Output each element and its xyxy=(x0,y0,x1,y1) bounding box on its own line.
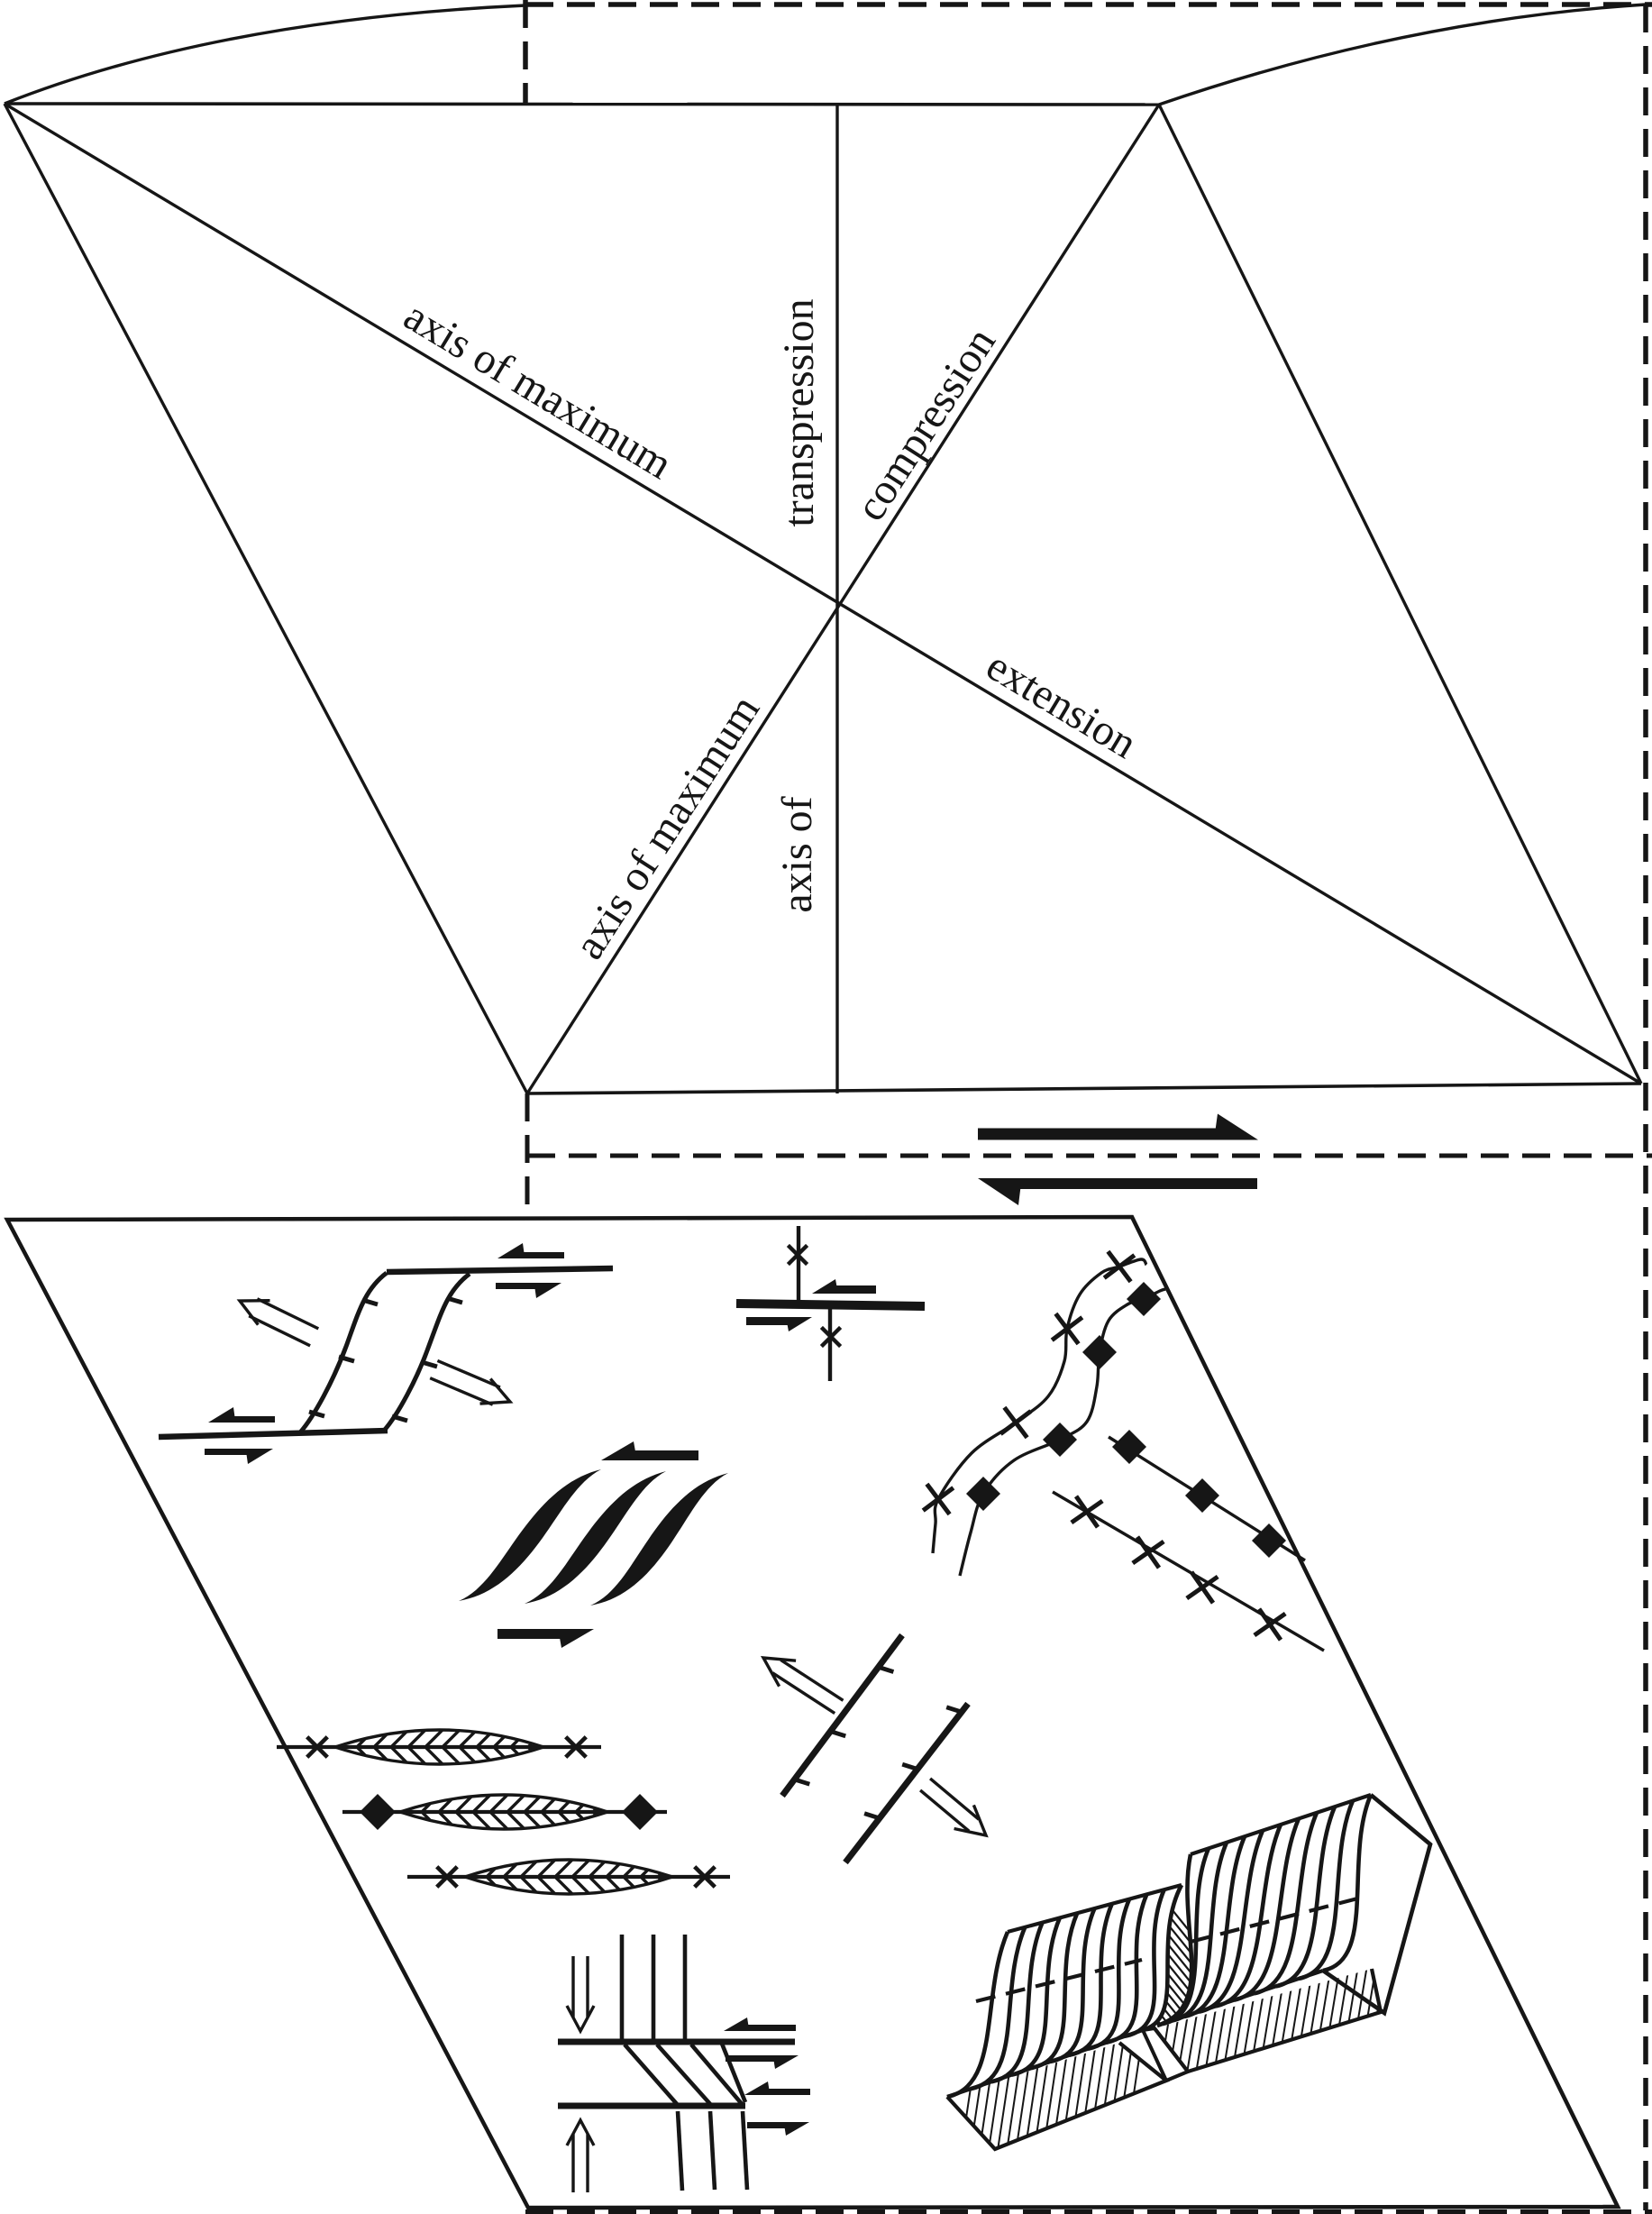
svg-text:transpression: transpression xyxy=(775,298,823,526)
svg-text:axis of: axis of xyxy=(773,796,821,912)
